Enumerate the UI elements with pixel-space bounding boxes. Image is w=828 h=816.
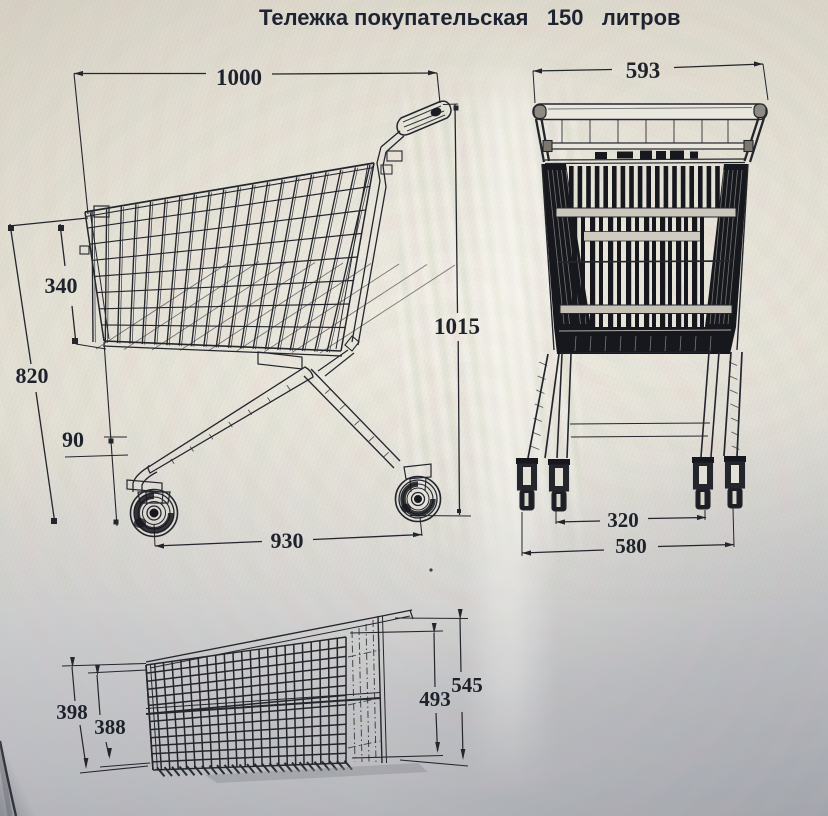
svg-text:398: 398: [56, 700, 88, 724]
svg-text:320: 320: [607, 508, 639, 532]
svg-text:1000: 1000: [216, 65, 262, 90]
svg-text:593: 593: [626, 58, 661, 83]
svg-text:580: 580: [615, 534, 647, 558]
svg-text:930: 930: [271, 528, 304, 553]
svg-text:340: 340: [45, 273, 78, 298]
svg-text:493: 493: [419, 687, 451, 711]
svg-text:388: 388: [94, 715, 126, 739]
svg-text:1015: 1015: [434, 314, 480, 339]
svg-text:820: 820: [16, 363, 49, 388]
svg-text:90: 90: [62, 427, 84, 452]
svg-text:545: 545: [451, 673, 483, 697]
